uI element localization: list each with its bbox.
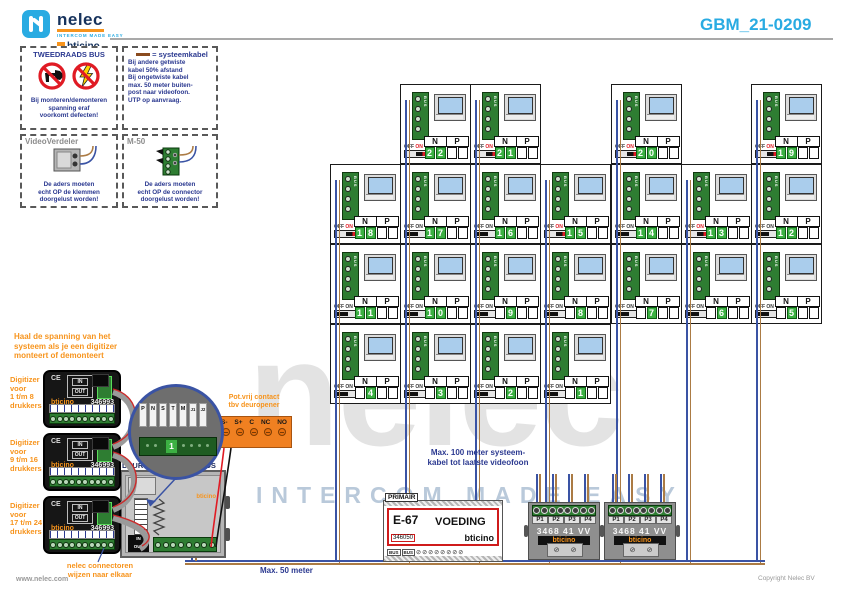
distributor-stub <box>536 474 538 502</box>
videophone-unit: BUSOFF ONNP11 <box>330 244 401 324</box>
legend-m50-line: doorgelust worden! <box>124 196 216 204</box>
distributor-jumper <box>623 543 659 557</box>
video-distributor-icon <box>38 146 100 176</box>
videophone-unit: BUSOFF ONNP15 <box>540 164 611 244</box>
digitizer-dip-strip <box>49 530 115 539</box>
power-supply: E-67 VOEDING 346050 bticino BUS BUS ⊘⊘⊘⊘… <box>383 500 503 562</box>
ce-mark: CE <box>51 501 61 508</box>
np-address: NP3 <box>424 376 468 399</box>
distributor-model: 3468 41 VV <box>529 526 599 536</box>
legend-cable-line: kabel 50% afstand <box>128 67 216 75</box>
terminal-block: BUS <box>482 252 499 300</box>
monitor-icon <box>574 174 606 201</box>
digitizer-terminals <box>49 413 115 424</box>
potential-free-contact: S- S+ C NC NO <box>216 416 292 448</box>
np-address: NP14 <box>635 216 679 239</box>
terminal-block: BUS <box>342 172 359 220</box>
door-station-brand: bticino <box>196 494 216 500</box>
header-divider <box>110 38 833 40</box>
riser-wire-blue <box>756 100 758 561</box>
system-cable-swatch <box>136 53 150 56</box>
monitor-icon <box>785 94 817 121</box>
terminal-block: BUS <box>552 172 569 220</box>
monitor-icon <box>645 254 677 281</box>
distributor-stub <box>628 474 630 502</box>
distributor-stub <box>663 474 665 502</box>
ce-mark: CE <box>51 438 61 445</box>
np-address: NP9 <box>494 296 538 319</box>
distributor-stub <box>584 474 586 502</box>
np-address: NP5 <box>775 296 819 319</box>
legend-m50-line: echt OP de connector <box>124 189 216 197</box>
digitizer-terminals <box>49 539 115 550</box>
distributor-stub <box>552 474 554 502</box>
riser-wire-blue <box>475 100 477 561</box>
distributor-stub <box>612 474 614 502</box>
digitizer-module: CEINOUTbticino346993 <box>43 370 121 428</box>
riser-wire-brown <box>479 100 481 564</box>
terminal-block: BUS <box>552 332 569 380</box>
riser-wire-brown <box>620 100 622 564</box>
np-address: NP18 <box>354 216 398 239</box>
riser-wire-brown <box>339 180 341 564</box>
door-station-dip-switch <box>134 498 148 536</box>
legend-verdeler-title: VideoVerdeler <box>25 137 116 146</box>
videophone-unit: BUSOFF ONNP1 <box>540 324 611 404</box>
legend-m50-box: M-50 De aders moeten echt OP de connecto… <box>122 134 218 208</box>
terminal-block: BUS <box>342 332 359 380</box>
riser-wire-blue <box>405 100 407 561</box>
distributor-stub <box>644 474 646 502</box>
power-supply-name: VOEDING <box>435 516 486 528</box>
door-station-in-out-connector: IN OUT <box>128 535 149 552</box>
monitor-icon <box>715 174 747 201</box>
riser-wire-blue <box>335 180 337 561</box>
np-address: NP8 <box>564 296 608 319</box>
videophone-unit: BUSOFF ONNP19 <box>751 84 822 164</box>
door-station-terminals <box>153 537 217 552</box>
terminal-pins: P N S T M J1 J2 <box>139 403 207 427</box>
terminal-block: BUS <box>412 172 429 220</box>
np-address: NP20 <box>635 136 679 159</box>
monitor-icon <box>364 254 396 281</box>
legend-verdeler-line: echt OP de klemmen <box>22 189 116 197</box>
terminal-block: BUS <box>482 92 499 140</box>
terminal-block: BUS <box>623 92 640 140</box>
legend-cable-line: UTP op aanvraag. <box>128 97 216 105</box>
np-address: NP11 <box>354 296 398 319</box>
door-station-coil-icon <box>152 498 166 536</box>
distributor-stub <box>568 474 570 502</box>
in-out-diagram: INOUT <box>67 438 93 461</box>
videophone-unit: BUSOFF ONNP21 <box>470 84 541 164</box>
distributor-stub <box>555 474 557 502</box>
max-100m-note: Max. 100 meter systeem- kabel tot laatst… <box>408 448 548 467</box>
copyright-note: Copyright Nelec BV <box>758 575 815 582</box>
magnifier-detail: P N S T M J1 J2 1 <box>128 384 224 480</box>
din-rail <box>384 556 502 561</box>
m50-connector-icon <box>139 146 201 176</box>
monitor-icon <box>504 334 536 361</box>
np-address: NP19 <box>775 136 819 159</box>
ribbon-plug <box>92 437 109 450</box>
distributor-output-terminals <box>532 505 596 516</box>
np-address: NP15 <box>564 216 608 239</box>
terminal-block: BUS <box>763 92 780 140</box>
videophone-unit: BUSOFF ONNP7 <box>611 244 682 324</box>
legend-verdeler-line: De aders moeten <box>22 181 116 189</box>
monitor-icon <box>434 174 466 201</box>
legend-m50-line: De aders moeten <box>124 181 216 189</box>
videophone-unit: BUSOFF ONNP12 <box>751 164 822 244</box>
distributor-ports: P1P2P3P4 <box>608 516 672 524</box>
door-contact-label: Pot.vrij contact tbv deuropener <box>212 394 296 410</box>
monitor-icon <box>645 174 677 201</box>
address-strip: 1 <box>139 437 217 456</box>
monitor-icon <box>574 254 606 281</box>
ribbon-plug <box>92 500 109 513</box>
np-address: NP1 <box>564 376 608 399</box>
monitor-icon <box>434 254 466 281</box>
contact-terminal-labels: S- S+ C NC NO <box>217 417 291 426</box>
digitizer-label: Digitizervoor17 t/m 24drukkers <box>10 502 44 536</box>
monitor-icon <box>364 174 396 201</box>
np-address: NP12 <box>775 216 819 239</box>
legend-verdeler-box: VideoVerdeler De aders moeten echt OP de… <box>20 134 118 208</box>
riser-wire-blue <box>686 180 688 561</box>
videophone-unit: BUSOFF ONNP20 <box>611 84 682 164</box>
distributor-stub <box>587 474 589 502</box>
videophone-unit: BUSOFF ONNP16 <box>470 164 541 244</box>
np-address: NP21 <box>494 136 538 159</box>
digitizer-dip-strip <box>49 467 115 476</box>
legend-verdeler-line: doorgelust worden! <box>22 196 116 204</box>
power-supply-model: E-67 <box>393 513 418 527</box>
prohibition-icons <box>22 61 116 96</box>
videophone-unit: BUSOFF ONNP3 <box>400 324 471 404</box>
terminal-block: BUS <box>412 332 429 380</box>
videophone-unit: BUSOFF ONNP22 <box>400 84 471 164</box>
distributor-model: 3468 41 VV <box>605 526 675 536</box>
ribbon-plug <box>92 374 109 387</box>
legend-cable-line: Bij ongetwiste kabel <box>128 74 216 82</box>
monitor-icon <box>504 254 536 281</box>
videophone-unit: BUSOFF ONNP4 <box>330 324 401 404</box>
monitor-icon <box>504 174 536 201</box>
legend-m50-title: M-50 <box>127 137 216 146</box>
np-address: NP6 <box>705 296 749 319</box>
power-supply-primair-label: PRIMAIR <box>385 493 418 502</box>
max-50m-note: Max. 50 meter <box>260 566 313 575</box>
terminal-block: BUS <box>482 332 499 380</box>
monitor-icon <box>434 334 466 361</box>
ce-mark: CE <box>51 375 61 382</box>
monitor-icon <box>504 94 536 121</box>
videophone-unit: BUSOFF ONNP2 <box>470 324 541 404</box>
terminal-block: BUS <box>412 92 429 140</box>
address-digit: 1 <box>166 440 177 453</box>
terminal-block: BUS <box>623 252 640 300</box>
videophone-unit: BUSOFF ONNP5 <box>751 244 822 324</box>
door-station-camera-window <box>128 477 156 495</box>
distributor-stub <box>571 474 573 502</box>
monitor-icon <box>785 254 817 281</box>
videophone-unit: BUSOFF ONNP9 <box>470 244 541 324</box>
riser-wire-brown <box>760 100 762 564</box>
digitizer-label: Digitizervoor1 t/m 8drukkers <box>10 376 44 410</box>
legend-bus-line: Bij monteren/demonteren <box>22 97 116 105</box>
videophone-unit: BUSOFF ONNP10 <box>400 244 471 324</box>
terminal-block: BUS <box>482 172 499 220</box>
legend-bus-title: TWEEDRAADS BUS <box>22 50 116 59</box>
distributor-stub <box>539 474 541 502</box>
legend-cable-line: post naar videofoon. <box>128 89 216 97</box>
monitor-icon <box>574 334 606 361</box>
videophone-unit: BUSOFF ONNP14 <box>611 164 682 244</box>
videophone-unit: BUSOFF ONNP8 <box>540 244 611 324</box>
np-address: NP22 <box>424 136 468 159</box>
digitizer-label: Digitizervoor9 t/m 16drukkers <box>10 439 44 473</box>
in-out-diagram: INOUT <box>67 375 93 398</box>
brand-name: nelec <box>57 10 103 30</box>
monitor-icon <box>645 94 677 121</box>
distributor-jumper <box>547 543 583 557</box>
terminal-block: BUS <box>412 252 429 300</box>
digitizer-dip-strip <box>49 404 115 413</box>
power-supply-face: E-67 VOEDING 346050 bticino <box>387 508 499 546</box>
contact-screws <box>217 426 291 436</box>
distributor-stub <box>660 474 662 502</box>
brand-rule <box>57 29 104 32</box>
monitor-icon <box>785 174 817 201</box>
terminal-block: BUS <box>342 252 359 300</box>
monitor-icon <box>434 94 466 121</box>
wiring-diagram-page: nelec INTERCOM MADE EASY nelec intercom … <box>0 0 841 595</box>
power-supply-brand: bticino <box>465 533 495 543</box>
np-address: NP13 <box>705 216 749 239</box>
document-number: GBM_21-0209 <box>700 15 812 35</box>
np-address: NP17 <box>424 216 468 239</box>
distributor-stub <box>631 474 633 502</box>
np-address: NP7 <box>635 296 679 319</box>
videophone-unit: BUSOFF ONNP17 <box>400 164 471 244</box>
bus-wire-brown <box>185 563 765 565</box>
distributor-stub <box>647 474 649 502</box>
legend-cable-title: = systeemkabel <box>128 50 216 59</box>
digitizer-module: CEINOUTbticino346993 <box>43 496 121 554</box>
videophone-unit: BUSOFF ONNP18 <box>330 164 401 244</box>
legend-cable-line: max. 50 meter buiten- <box>128 82 216 90</box>
terminal-block: BUS <box>763 172 780 220</box>
video-distributor: P1P2P3P43468 41 VVbticino <box>604 502 676 560</box>
np-address: NP2 <box>494 376 538 399</box>
legend-bus-line: voorkomt defecten! <box>22 112 116 120</box>
nelec-logo-icon <box>22 10 50 38</box>
digitizer-terminals <box>49 476 115 487</box>
connector-note: nelec connectoren wijzen naar elkaar <box>50 562 150 579</box>
distributor-output-terminals <box>608 505 672 516</box>
digitizer-warning: Haal de spanning van het systeem als je … <box>14 332 117 361</box>
terminal-block: BUS <box>552 252 569 300</box>
monitor-icon <box>364 334 396 361</box>
np-address: NP4 <box>354 376 398 399</box>
legend-cable-box: = systeemkabel Bij andere getwiste kabel… <box>122 46 218 130</box>
distributor-ports: P1P2P3P4 <box>532 516 596 524</box>
distributor-stub <box>615 474 617 502</box>
brand-tagline: intercom made easy <box>57 33 123 38</box>
door-station: bticino IN OUT <box>120 470 226 558</box>
no-lightning-icon <box>71 61 101 91</box>
np-address: NP10 <box>424 296 468 319</box>
terminal-block: BUS <box>693 252 710 300</box>
legend-bus-line: spanning eraf <box>22 105 116 113</box>
digitizer-module: CEINOUTbticino346993 <box>43 433 121 491</box>
terminal-block: BUS <box>623 172 640 220</box>
terminal-block: BUS <box>693 172 710 220</box>
in-out-diagram: INOUT <box>67 501 93 524</box>
legend-bus-box: TWEEDRAADS BUS Bij monteren/demonteren s… <box>20 46 118 130</box>
monitor-icon <box>715 254 747 281</box>
np-address: NP16 <box>494 216 538 239</box>
power-supply-article: 346050 <box>391 534 415 542</box>
video-distributor: P1P2P3P43468 41 VVbticino <box>528 502 600 560</box>
videophone-unit: BUSOFF ONNP13 <box>681 164 752 244</box>
terminal-block: BUS <box>763 252 780 300</box>
videophone-unit: BUSOFF ONNP6 <box>681 244 752 324</box>
riser-wire-brown <box>690 180 692 564</box>
no-drill-icon <box>37 61 67 91</box>
legend-cable-line: Bij andere getwiste <box>128 59 216 67</box>
